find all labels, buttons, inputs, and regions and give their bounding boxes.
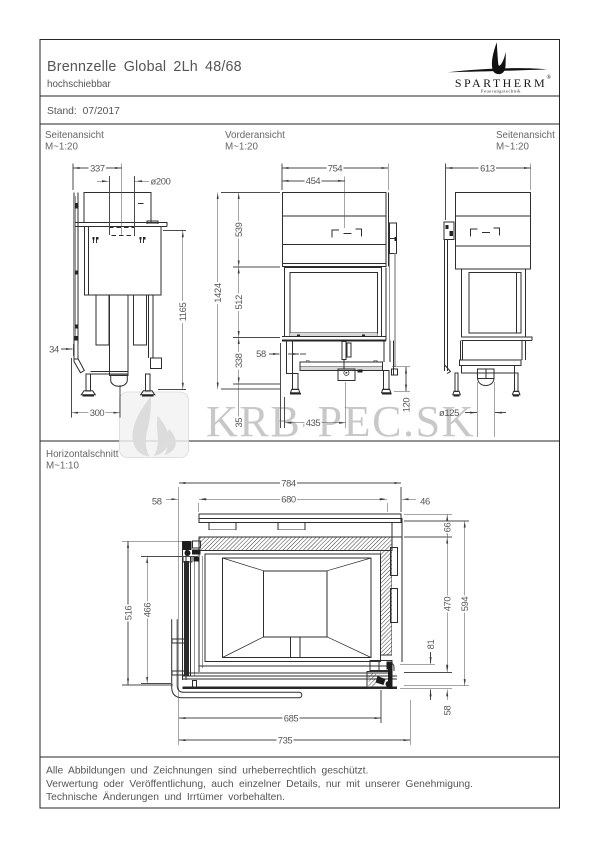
svg-text:613: 613 xyxy=(480,162,495,173)
svg-text:300: 300 xyxy=(90,407,105,418)
svg-text:1424: 1424 xyxy=(212,283,223,303)
svg-text:512: 512 xyxy=(233,295,244,310)
svg-text:516: 516 xyxy=(122,606,133,621)
svg-text:81: 81 xyxy=(425,640,436,650)
svg-text:454: 454 xyxy=(306,175,321,186)
svg-text:680: 680 xyxy=(281,494,296,505)
svg-text:754: 754 xyxy=(328,162,343,173)
svg-text:58: 58 xyxy=(442,706,453,716)
svg-text:M~1:20: M~1:20 xyxy=(225,142,259,153)
svg-text:337: 337 xyxy=(90,162,105,173)
svg-text:M~1:20: M~1:20 xyxy=(45,142,79,153)
svg-text:Vorderansicht: Vorderansicht xyxy=(225,130,285,141)
svg-text:46: 46 xyxy=(420,495,430,506)
svg-text:35: 35 xyxy=(233,418,244,428)
svg-text:®: ® xyxy=(547,74,552,81)
svg-text:120: 120 xyxy=(400,398,411,413)
svg-text:Seitenansicht: Seitenansicht xyxy=(496,130,555,141)
svg-text:Horizontalschnitt: Horizontalschnitt xyxy=(46,449,119,460)
svg-text:435: 435 xyxy=(306,417,321,428)
svg-text:ø125: ø125 xyxy=(439,407,459,418)
svg-text:685: 685 xyxy=(284,712,299,723)
svg-text:Verwertung oder Veröffentlichu: Verwertung oder Veröffentlichung, auch e… xyxy=(46,779,473,790)
svg-text:ø200: ø200 xyxy=(151,175,171,186)
svg-text:M~1:20: M~1:20 xyxy=(496,142,530,153)
svg-text:Alle Abbildungen und Zeichnung: Alle Abbildungen und Zeichnungen sind ur… xyxy=(46,766,368,777)
svg-text:784: 784 xyxy=(281,477,296,488)
svg-text:594: 594 xyxy=(459,597,470,612)
svg-text:539: 539 xyxy=(233,222,244,237)
svg-text:Seitenansicht: Seitenansicht xyxy=(45,130,104,141)
svg-text:1165: 1165 xyxy=(177,302,188,321)
svg-text:66: 66 xyxy=(442,523,453,533)
svg-text:735: 735 xyxy=(278,734,293,745)
svg-text:Feuerungstechnik: Feuerungstechnik xyxy=(481,89,521,94)
svg-text:M~1:10: M~1:10 xyxy=(46,461,80,472)
svg-text:Stand: 07/2017: Stand: 07/2017 xyxy=(47,106,120,117)
svg-text:466: 466 xyxy=(141,603,152,618)
svg-text:58: 58 xyxy=(256,348,266,359)
svg-text:KRB-PEC.SK: KRB-PEC.SK xyxy=(206,397,475,446)
svg-text:Brennzelle Global 2Lh 48/68: Brennzelle Global 2Lh 48/68 xyxy=(47,59,242,75)
svg-text:470: 470 xyxy=(442,597,453,612)
svg-text:Technische Änderungen und Irrt: Technische Änderungen und Irrtümer vorbe… xyxy=(46,791,285,803)
svg-text:58: 58 xyxy=(152,495,162,506)
svg-text:34: 34 xyxy=(49,343,59,354)
svg-text:hochschiebbar: hochschiebbar xyxy=(47,79,111,90)
svg-text:338: 338 xyxy=(233,353,244,368)
